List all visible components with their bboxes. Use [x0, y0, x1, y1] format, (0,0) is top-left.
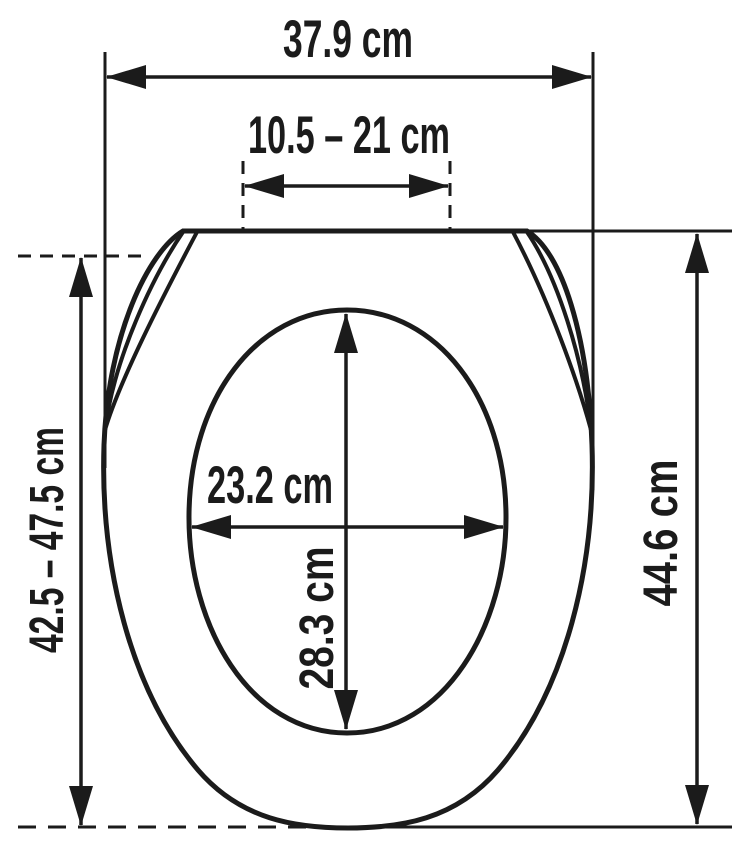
- dimension-arrows-group: [81, 77, 697, 825]
- label-inner-width: 23.2 cm: [207, 456, 333, 515]
- seat-shape-group: [104, 231, 593, 828]
- label-inner-depth: 28.3 cm: [291, 547, 344, 690]
- label-overall-depth-range: 42.5 – 47.5 cm: [21, 427, 74, 653]
- seat-outer-outline: [104, 231, 593, 828]
- label-seat-depth: 44.6 cm: [635, 460, 688, 607]
- label-overall-width: 37.9 cm: [283, 10, 413, 69]
- toilet-seat-dimension-diagram: 37.9 cm 10.5 – 21 cm 23.2 cm 28.3 cm 42.…: [0, 0, 751, 850]
- dimension-diagram-canvas: 37.9 cm 10.5 – 21 cm 23.2 cm 28.3 cm 42.…: [0, 0, 751, 850]
- label-hinge-distance: 10.5 – 21 cm: [248, 106, 450, 165]
- reference-lines-group: [18, 52, 732, 827]
